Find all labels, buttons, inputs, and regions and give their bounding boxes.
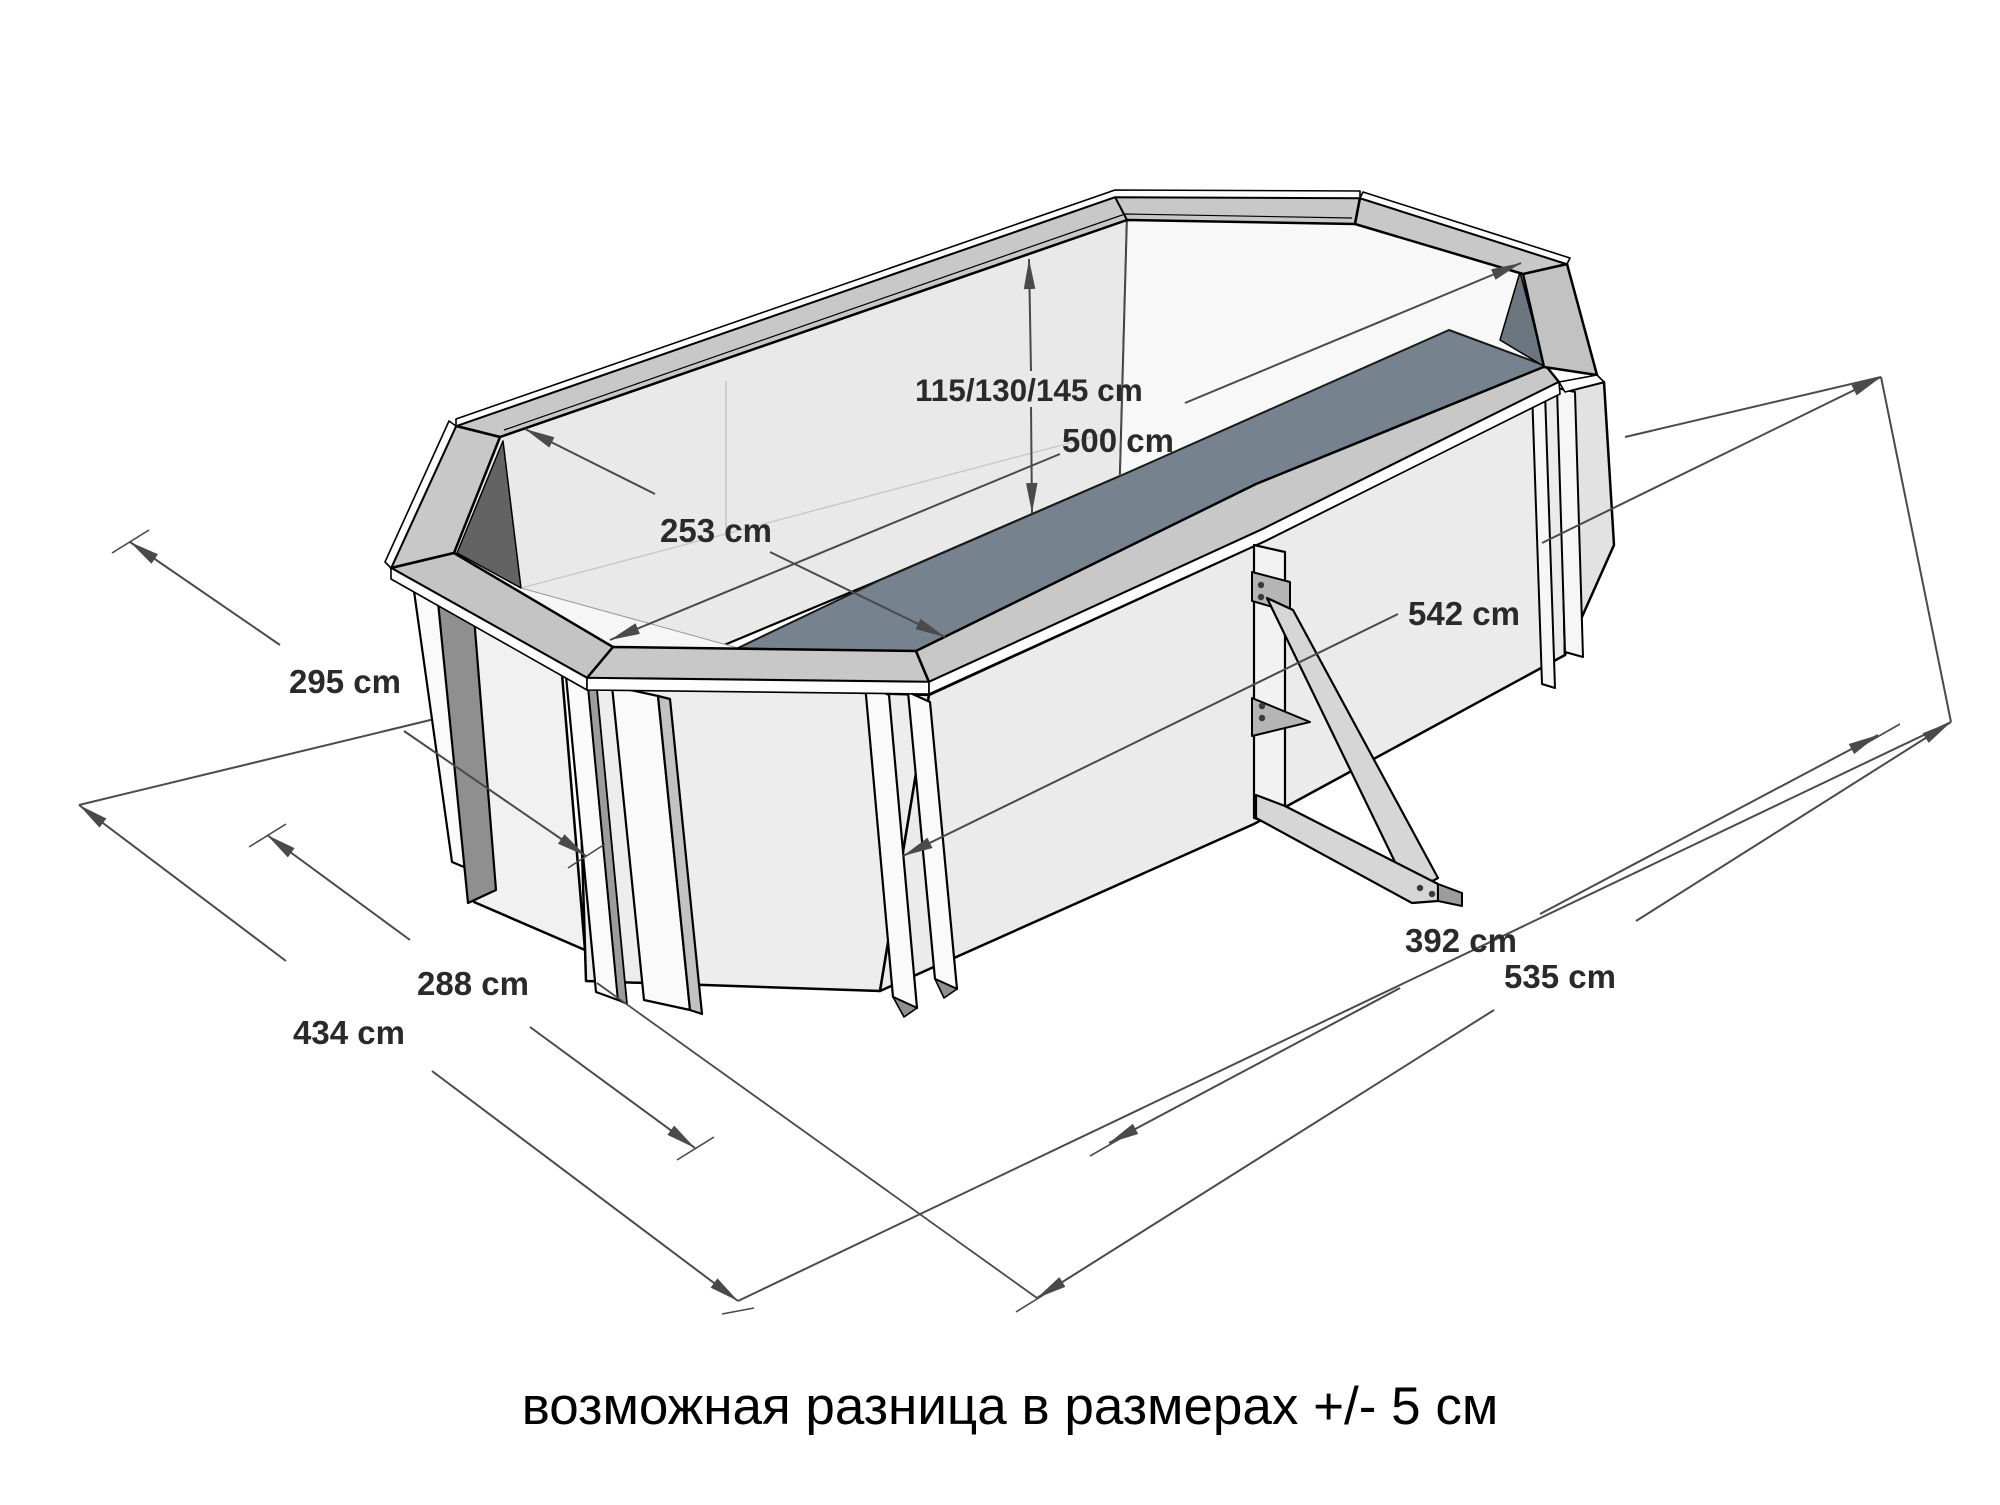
svg-text:392 cm: 392 cm <box>1405 922 1517 959</box>
svg-text:542 cm: 542 cm <box>1408 595 1520 632</box>
svg-text:295 cm: 295 cm <box>289 663 401 700</box>
svg-text:500 cm: 500 cm <box>1062 422 1174 459</box>
svg-text:115/130/145 cm: 115/130/145 cm <box>915 372 1143 408</box>
svg-text:434 cm: 434 cm <box>293 1014 405 1051</box>
svg-text:288 cm: 288 cm <box>417 965 529 1002</box>
svg-text:253 cm: 253 cm <box>660 512 772 549</box>
svg-text:535 cm: 535 cm <box>1504 958 1616 995</box>
svg-text:возможная разница в размерах +: возможная разница в размерах +/- 5 см <box>522 1377 1499 1436</box>
